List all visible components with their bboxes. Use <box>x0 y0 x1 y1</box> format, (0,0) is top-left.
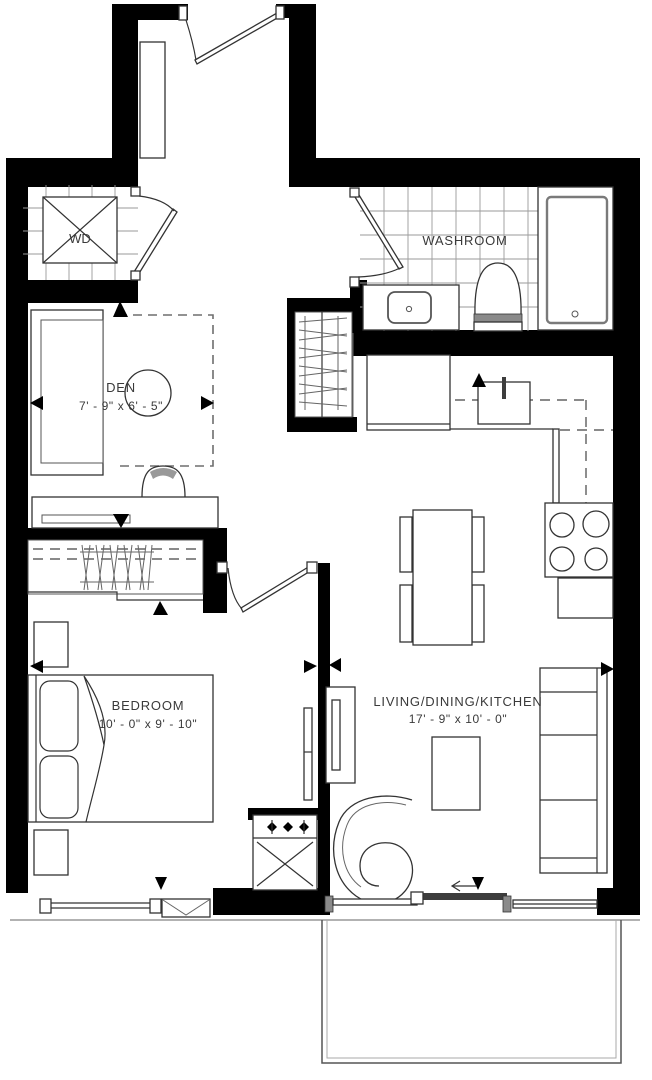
wall-right-outer <box>613 158 640 915</box>
dining-chair-2 <box>400 585 412 642</box>
toilet-bowl <box>475 263 521 316</box>
coat-closet <box>295 312 352 417</box>
slider-fixed-pane <box>333 899 417 905</box>
bedroom-marker-bottom <box>155 877 167 890</box>
bedroom-marker-top <box>153 601 168 615</box>
burner-4 <box>585 548 607 570</box>
slider-end-cap-right <box>503 896 511 912</box>
slider-open-arrow <box>452 881 477 891</box>
wall-bottom-right <box>597 888 640 915</box>
dining-chair-1 <box>400 517 412 572</box>
toilet-seat-hinge <box>474 314 522 322</box>
bedroom-label: BEDROOM <box>112 698 185 713</box>
counter-end-panel <box>553 429 559 503</box>
burner-1 <box>550 513 574 537</box>
coffee-table <box>432 737 480 810</box>
dining-chair-3 <box>472 517 484 572</box>
operable-window <box>162 899 210 917</box>
wall-vestibule-right <box>289 4 316 160</box>
wall-washroom-top <box>289 158 640 187</box>
wall-coat-closet-left <box>287 298 295 432</box>
burner-2 <box>583 511 609 537</box>
entry-door-leaf <box>195 13 279 64</box>
wall-vestibule-left <box>112 4 138 187</box>
dining-area <box>400 510 484 645</box>
living-marker-left <box>329 658 341 672</box>
wall-wd-top <box>6 158 112 187</box>
wd-door-frame-top <box>131 187 140 196</box>
dining-table <box>413 510 472 645</box>
kitchen-marker-top <box>472 373 486 387</box>
bedroom-window-frame-left <box>40 899 51 913</box>
living-room: LIVING/DINING/KITCHEN 17' - 9" x 10' - 0… <box>326 668 607 904</box>
entry <box>140 6 284 158</box>
balcony-inner-edge <box>327 920 616 1058</box>
bathtub-basin <box>547 197 607 323</box>
laundry-closet: WD <box>43 187 177 280</box>
floor-plan-canvas: WD WASHROOM DEN 7' - 9" x 6' - 5" <box>0 0 652 1080</box>
den-label: DEN <box>106 380 136 395</box>
living-dimensions: 17' - 9" x 10' - 0" <box>409 712 508 726</box>
slider-moving-panel <box>417 893 507 900</box>
balcony <box>322 920 621 1063</box>
bedroom-door-frame-right <box>307 562 317 573</box>
den-marker-top <box>113 301 128 317</box>
fan-coil-unit <box>253 815 317 890</box>
washroom-door-frame-top <box>350 188 359 197</box>
wall-kitchen-top <box>352 330 613 356</box>
kitchen <box>367 355 613 618</box>
curved-lounge-chair <box>334 796 413 903</box>
entry-door-frame-right <box>276 6 284 19</box>
den-marker-right <box>201 396 214 410</box>
burner-3 <box>550 547 574 571</box>
wall-desk-bottom <box>6 528 218 540</box>
bed-pillow-2 <box>40 756 78 818</box>
washroom-label: WASHROOM <box>422 233 507 248</box>
washroom-door-swing-arc <box>358 268 400 277</box>
bedroom-dimensions: 10' - 0" x 9' - 10" <box>99 717 198 731</box>
wall-left-outer <box>6 158 28 893</box>
bedroom-door-leaf <box>241 566 312 612</box>
toilet-tank <box>474 322 522 331</box>
living-marker-bottom <box>472 877 484 890</box>
entry-door-swing-arc <box>186 20 196 60</box>
den-sofa-cushion <box>41 320 103 463</box>
nightstand-bottom <box>34 830 68 875</box>
slider-handle <box>411 892 423 904</box>
base-cabinet <box>558 578 613 618</box>
balcony-outer-edge <box>322 920 621 1063</box>
entry-door-frame-left <box>179 6 187 20</box>
kitchen-faucet <box>502 377 506 399</box>
wall-coat-closet-top <box>287 298 352 312</box>
wall-bottom-middle <box>213 888 330 915</box>
washroom-door-leaf <box>355 195 403 269</box>
bedroom-window-glass <box>51 903 150 908</box>
fridge <box>367 355 450 430</box>
coat-closet-interior <box>295 312 352 417</box>
vanity-faucet <box>406 306 411 311</box>
bathtub-drain <box>572 311 578 317</box>
floor-plan: WD WASHROOM DEN 7' - 9" x 6' - 5" <box>0 0 652 1080</box>
wd-door-frame-bottom <box>131 271 140 280</box>
wd-label: WD <box>69 231 91 246</box>
wd-door-leaf <box>134 209 177 275</box>
washroom-door-frame-bottom <box>350 277 359 287</box>
wall-wd-bottom <box>23 280 138 303</box>
bedroom-tv <box>304 708 312 800</box>
living-tv <box>332 700 340 770</box>
bedroom-door-frame-left <box>217 562 227 573</box>
den: DEN 7' - 9" x 6' - 5" <box>31 310 218 528</box>
wall-entry-lintel-left <box>112 4 188 20</box>
dining-chair-4 <box>472 585 484 642</box>
slider-end-cap-left <box>325 896 333 912</box>
wd-door-swing-arc <box>139 196 174 211</box>
bedroom-window-frame-right <box>150 899 161 913</box>
bedroom-closet <box>28 540 203 600</box>
nightstand-top <box>34 622 68 667</box>
bedroom-door-swing-arc <box>228 568 242 609</box>
living-label: LIVING/DINING/KITCHEN <box>373 694 542 709</box>
den-dimensions: 7' - 9" x 6' - 5" <box>79 399 163 413</box>
bed-pillow-1 <box>40 681 78 751</box>
bedroom-marker-right <box>304 660 317 673</box>
entry-console <box>140 42 165 158</box>
wall-coat-closet-bottom <box>287 417 357 432</box>
